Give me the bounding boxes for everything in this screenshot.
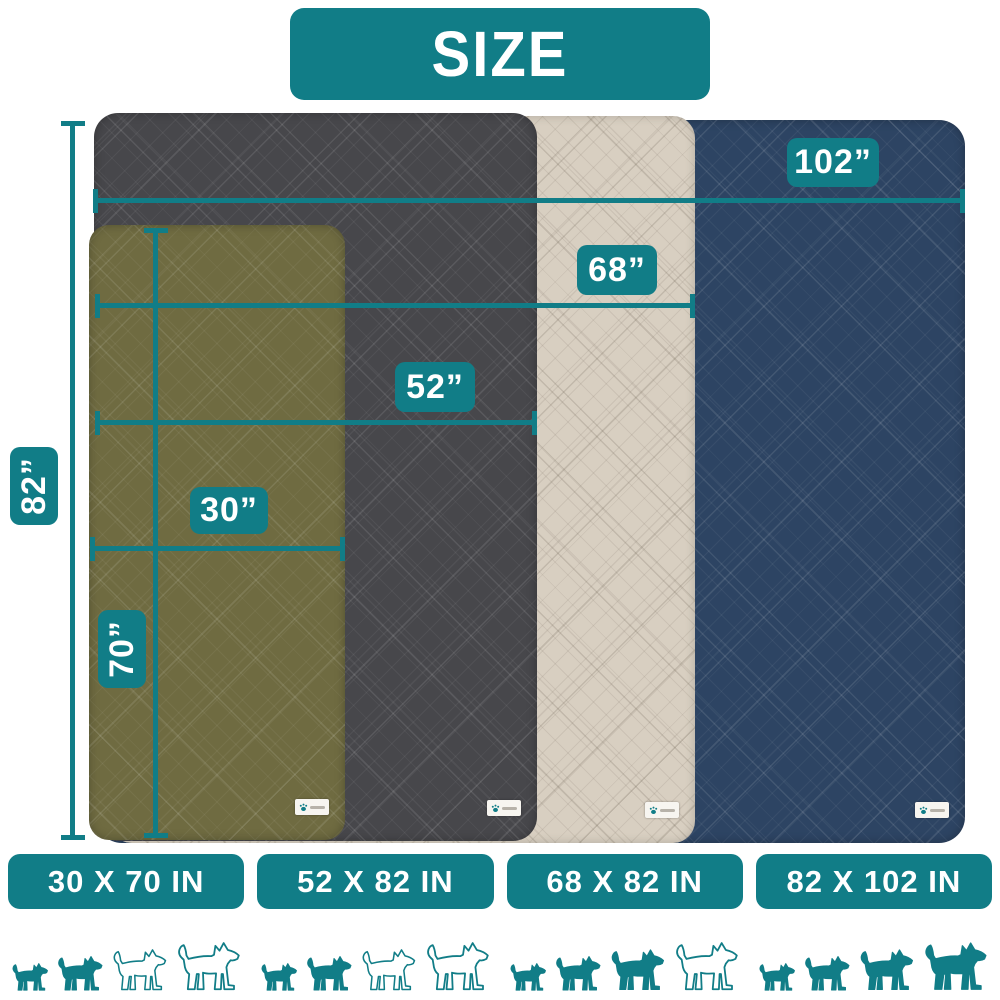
dog-icon-filled xyxy=(857,948,916,992)
paw-icon xyxy=(649,806,658,815)
dimension-badge-70in: 70” xyxy=(98,610,146,688)
dog-icon-outline xyxy=(359,948,418,992)
dog-row-30x70 xyxy=(8,912,244,998)
title-badge: SIZE xyxy=(290,8,710,100)
brand-tag xyxy=(487,800,521,816)
dog-icon-filled xyxy=(304,955,354,992)
size-pill-52x82: 52 X 82 IN xyxy=(257,854,493,909)
dimension-badge-30in: 30” xyxy=(190,487,268,534)
dimension-badge-68in: 68” xyxy=(577,245,657,295)
paw-icon xyxy=(919,806,928,815)
dimension-line-82in xyxy=(70,121,75,840)
dimension-line-52in xyxy=(95,420,537,425)
dog-icon-outline xyxy=(672,941,741,992)
dog-icon-filled xyxy=(757,962,797,992)
dog-row-52x82 xyxy=(257,912,493,998)
size-infographic: SIZE 102” 68” 52” 30” 82” 70” 30 X 70 IN… xyxy=(0,0,1000,1000)
dimension-badge-52in: 52” xyxy=(395,362,475,412)
brand-tag xyxy=(645,802,679,818)
dog-size-strip xyxy=(8,912,992,998)
page-title: SIZE xyxy=(432,17,569,91)
size-pill-68x82: 68 X 82 IN xyxy=(507,854,743,909)
dog-icon-filled xyxy=(55,955,105,992)
dog-icon-filled xyxy=(10,962,50,992)
brand-tag xyxy=(295,799,329,815)
dog-icon-outline xyxy=(423,941,492,992)
size-pill-30x70: 30 X 70 IN xyxy=(8,854,244,909)
dimension-line-68in xyxy=(95,303,695,308)
brand-tag xyxy=(915,802,949,818)
dimension-line-30in xyxy=(90,546,345,551)
dog-icon-outline xyxy=(174,941,243,992)
dog-icon-filled xyxy=(259,962,299,992)
paw-icon xyxy=(299,803,308,812)
dimension-line-70in xyxy=(153,228,158,838)
paw-icon xyxy=(491,804,500,813)
dog-icon-filled xyxy=(608,948,667,992)
dog-row-82x102 xyxy=(756,912,992,998)
dimension-badge-82in: 82” xyxy=(10,447,58,525)
dog-icon-filled xyxy=(508,962,548,992)
dog-icon-outline xyxy=(110,948,169,992)
dog-row-68x82 xyxy=(507,912,743,998)
size-pill-82x102: 82 X 102 IN xyxy=(756,854,992,909)
dog-icon-filled xyxy=(921,941,990,992)
dimension-line-102in xyxy=(93,198,965,203)
dog-icon-filled xyxy=(802,955,852,992)
dog-icon-filled xyxy=(553,955,603,992)
dimension-badge-102in: 102” xyxy=(787,138,879,187)
size-pill-row: 30 X 70 IN 52 X 82 IN 68 X 82 IN 82 X 10… xyxy=(8,854,992,909)
